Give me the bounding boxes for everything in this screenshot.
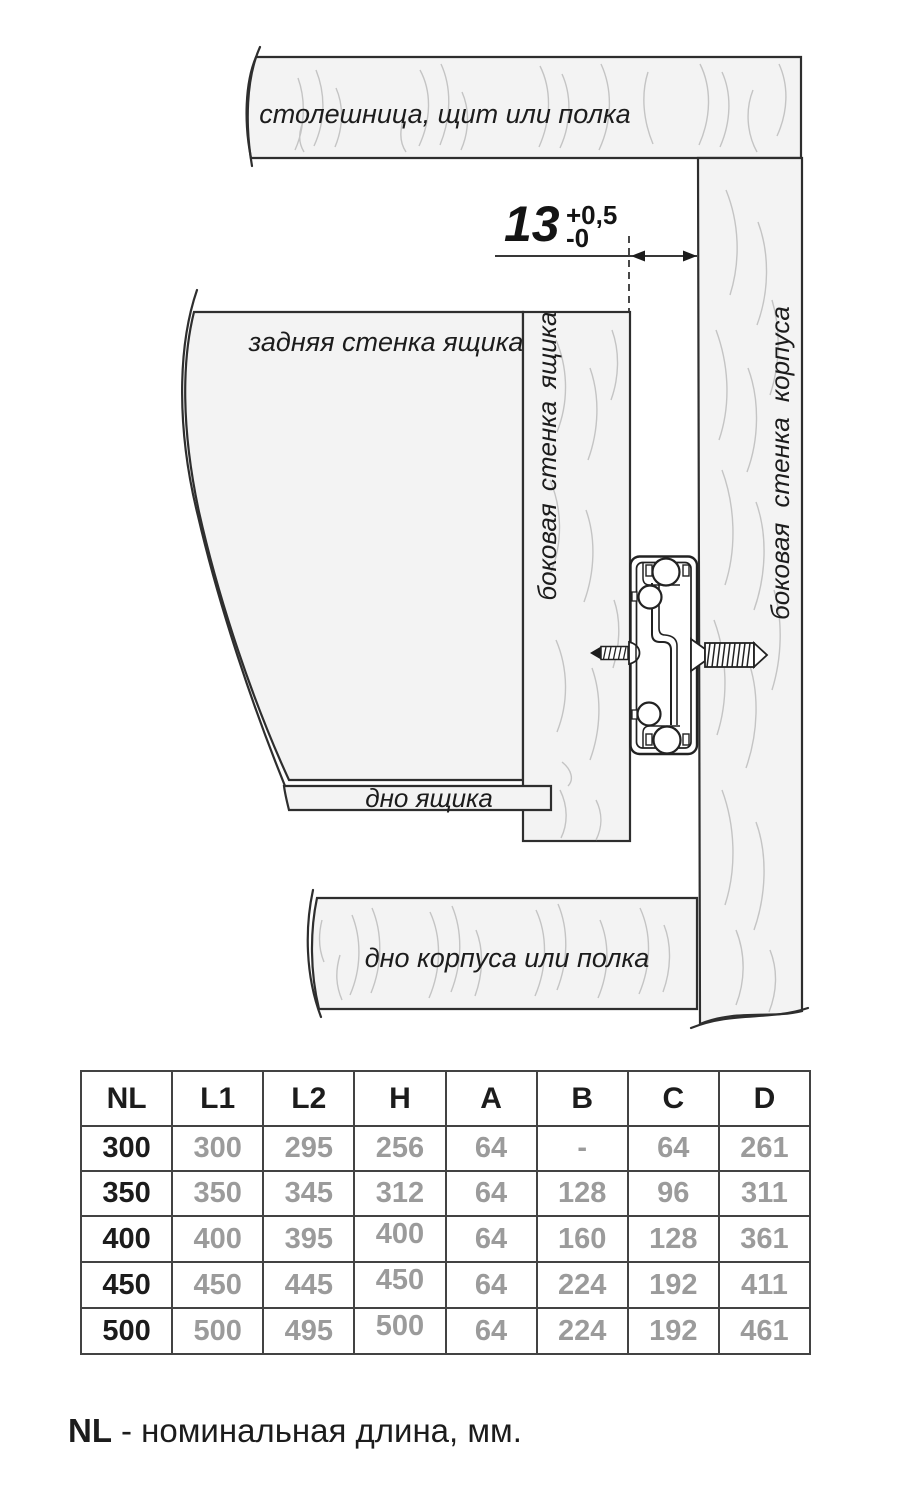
table-cell: 300 <box>172 1126 263 1171</box>
table-row: 450 450 445 450 64 224 192 411 <box>81 1262 810 1308</box>
column-header: H <box>354 1071 445 1126</box>
table-cell: - <box>537 1126 628 1171</box>
table-cell: 64 <box>628 1126 719 1171</box>
column-header: D <box>719 1071 810 1126</box>
table-cell: 64 <box>446 1126 537 1171</box>
table-cell: 192 <box>628 1308 719 1354</box>
dimension-tolerance-minus: -0 <box>566 223 589 253</box>
label-cabinet-bottom: дно корпуса или полка <box>365 943 650 973</box>
table-cell: 261 <box>719 1126 810 1171</box>
table-cell: 400 <box>172 1216 263 1262</box>
table-cell: 64 <box>446 1171 537 1216</box>
table-cell: 312 <box>354 1171 445 1216</box>
arrowhead-left <box>631 251 645 262</box>
arrowhead-right <box>683 251 697 262</box>
cabinet-side-wall-panel: боковая стенка корпуса <box>691 158 808 1028</box>
column-header: L1 <box>172 1071 263 1126</box>
table-cell: 461 <box>719 1308 810 1354</box>
footnote: NL- номинальная длина, мм. <box>68 1412 522 1450</box>
table-cell: 445 <box>263 1262 354 1308</box>
table-cell: 411 <box>719 1262 810 1308</box>
table-cell: 128 <box>537 1171 628 1216</box>
drawer-side-wall-panel: боковая стенка ящика <box>523 312 630 842</box>
table-row: 500 500 495 500 64 224 192 461 <box>81 1308 810 1354</box>
dimension-value: 13 <box>504 196 560 252</box>
table-cell: 311 <box>719 1171 810 1216</box>
table-cell: 295 <box>263 1126 354 1171</box>
table-cell: 64 <box>446 1308 537 1354</box>
table-cell: 256 <box>354 1126 445 1171</box>
header-row: NL L1 L2 H A B C D <box>81 1071 810 1126</box>
table-row: 350 350 345 312 64 128 96 311 <box>81 1171 810 1216</box>
table-cell: 64 <box>446 1262 537 1308</box>
table-cell: 500 <box>354 1308 445 1354</box>
table-cell: 450 <box>172 1262 263 1308</box>
table-row: 400 400 395 400 64 160 128 361 <box>81 1216 810 1262</box>
table-cell: 224 <box>537 1308 628 1354</box>
table-cell: 450 <box>81 1262 172 1308</box>
footnote-term: NL <box>68 1412 112 1449</box>
table-cell: 345 <box>263 1171 354 1216</box>
column-header: L2 <box>263 1071 354 1126</box>
table-cell: 350 <box>172 1171 263 1216</box>
label-back-wall: задняя стенка ящика <box>248 327 524 357</box>
table-cell: 224 <box>537 1262 628 1308</box>
dimensions-table: NL L1 L2 H A B C D 300 300 295 256 64 - … <box>80 1070 811 1355</box>
table-cell: 64 <box>446 1216 537 1262</box>
table-cell: 400 <box>354 1216 445 1262</box>
table-cell: 300 <box>81 1126 172 1171</box>
table-cell: 500 <box>172 1308 263 1354</box>
drawer-back-wall-panel: задняя стенка ящика <box>182 290 523 803</box>
table-cell: 160 <box>537 1216 628 1262</box>
label-top-panel: столешница, щит или полка <box>259 99 630 129</box>
table-cell: 361 <box>719 1216 810 1262</box>
table-cell: 96 <box>628 1171 719 1216</box>
table-row: 300 300 295 256 64 - 64 261 <box>81 1126 810 1171</box>
cabinet-bottom-panel: дно корпуса или полка <box>308 890 697 1017</box>
table-cell: 350 <box>81 1171 172 1216</box>
column-header: A <box>446 1071 537 1126</box>
table-cell: 500 <box>81 1308 172 1354</box>
footnote-definition: - номинальная длина, мм. <box>121 1412 522 1449</box>
gap-dimension: 13 +0,5 -0 <box>495 196 697 311</box>
drawer-bottom-panel: дно ящика <box>284 783 551 813</box>
table-cell: 395 <box>263 1216 354 1262</box>
label-drawer-side-wall: боковая стенка ящика <box>532 312 562 601</box>
top-panel: столешница, щит или полка <box>247 47 801 166</box>
table-cell: 450 <box>354 1262 445 1308</box>
column-header: C <box>628 1071 719 1126</box>
table-cell: 192 <box>628 1262 719 1308</box>
table-cell: 400 <box>81 1216 172 1262</box>
column-header: B <box>537 1071 628 1126</box>
label-drawer-bottom: дно ящика <box>365 783 493 813</box>
table-cell: 128 <box>628 1216 719 1262</box>
installation-diagram: столешница, щит или полка боковая стенка… <box>0 0 900 1060</box>
product-spec-sheet: столешница, щит или полка боковая стенка… <box>0 0 900 1500</box>
column-header: NL <box>81 1071 172 1126</box>
label-cabinet-side-wall: боковая стенка корпуса <box>765 306 795 620</box>
table-cell: 495 <box>263 1308 354 1354</box>
